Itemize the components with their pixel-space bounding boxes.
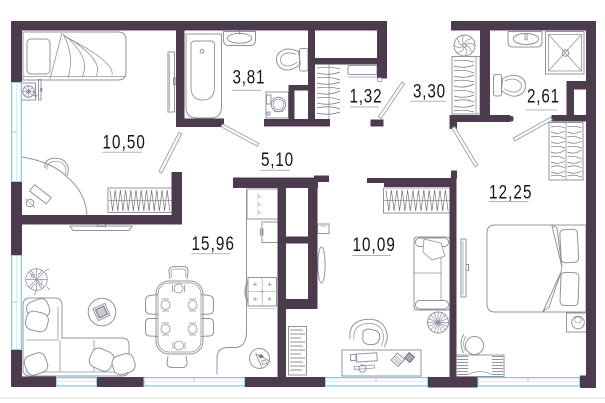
svg-text:5,10: 5,10 bbox=[261, 148, 293, 170]
svg-text:15,96: 15,96 bbox=[192, 232, 234, 254]
svg-text:10,09: 10,09 bbox=[352, 233, 394, 255]
svg-text:12,25: 12,25 bbox=[489, 181, 531, 203]
svg-text:3,30: 3,30 bbox=[413, 80, 445, 102]
svg-text:1,32: 1,32 bbox=[350, 85, 382, 107]
svg-text:3,81: 3,81 bbox=[232, 66, 264, 88]
svg-text:10,50: 10,50 bbox=[102, 131, 144, 153]
svg-text:2,61: 2,61 bbox=[527, 85, 559, 107]
